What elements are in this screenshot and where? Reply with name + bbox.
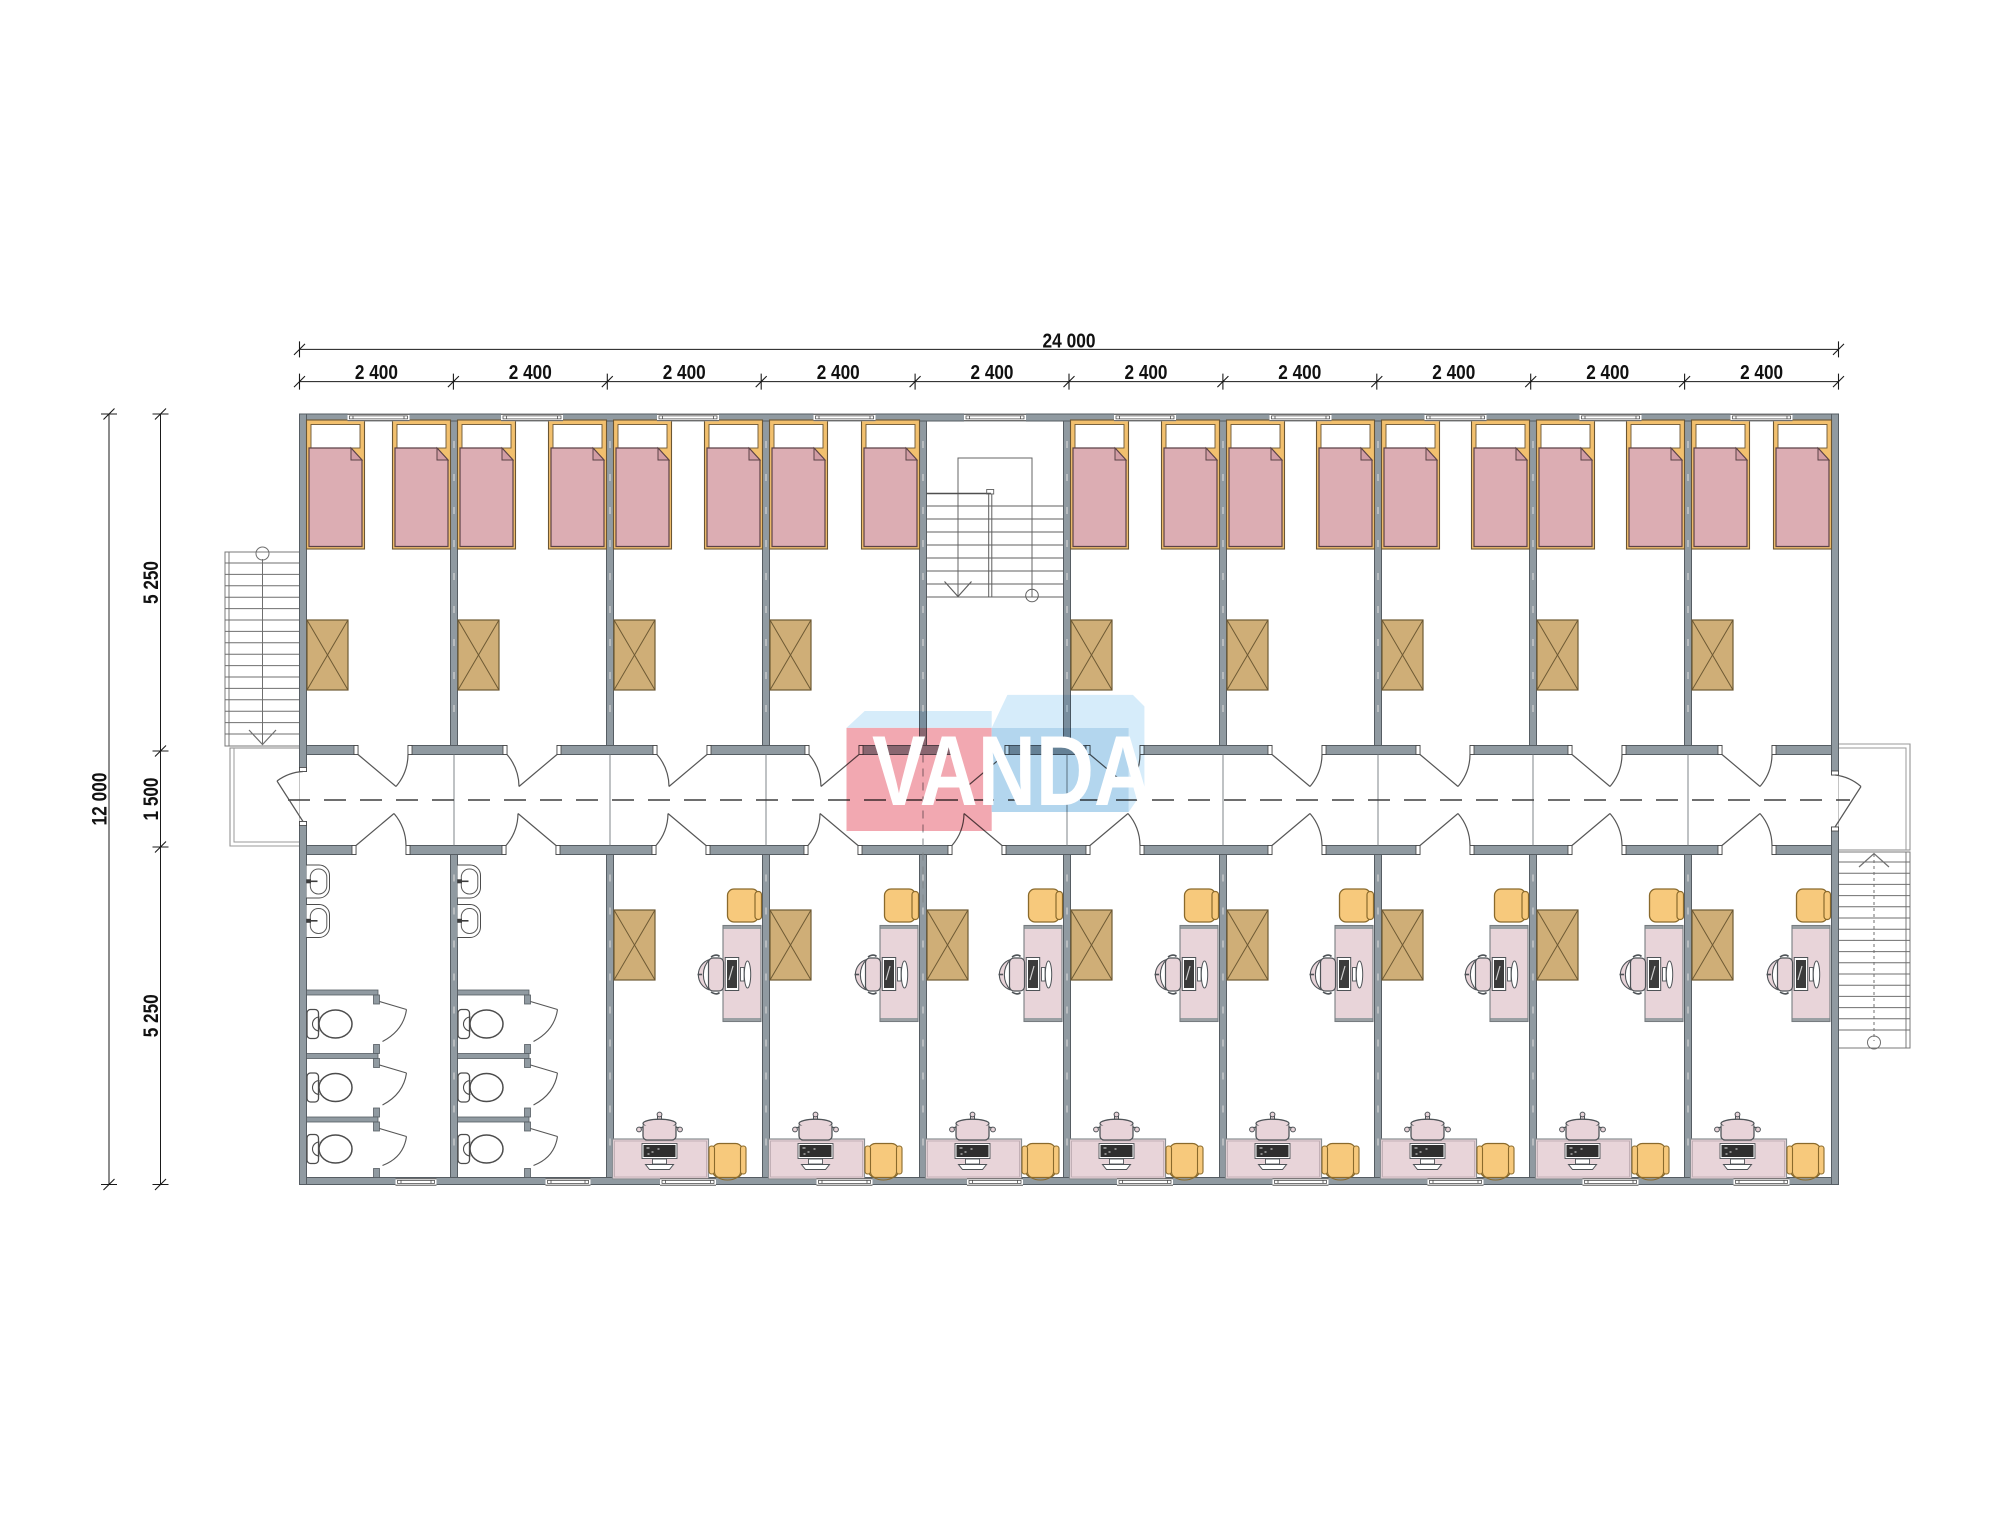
svg-text:1 500: 1 500 xyxy=(140,778,163,821)
svg-text:2 400: 2 400 xyxy=(1125,362,1168,384)
svg-text:12 000: 12 000 xyxy=(89,773,112,826)
svg-text:24 000: 24 000 xyxy=(1043,331,1096,353)
svg-text:2 400: 2 400 xyxy=(1278,362,1321,384)
svg-text:5 250: 5 250 xyxy=(140,561,163,604)
svg-text:VANDA: VANDA xyxy=(872,715,1152,826)
svg-text:2 400: 2 400 xyxy=(509,362,552,384)
svg-text:2 400: 2 400 xyxy=(817,362,860,384)
svg-text:2 400: 2 400 xyxy=(355,362,398,384)
svg-text:2 400: 2 400 xyxy=(1432,362,1475,384)
svg-text:5 250: 5 250 xyxy=(140,994,163,1037)
svg-text:2 400: 2 400 xyxy=(1586,362,1629,384)
svg-text:2 400: 2 400 xyxy=(663,362,706,384)
svg-text:2 400: 2 400 xyxy=(971,362,1014,384)
svg-text:2 400: 2 400 xyxy=(1740,362,1783,384)
